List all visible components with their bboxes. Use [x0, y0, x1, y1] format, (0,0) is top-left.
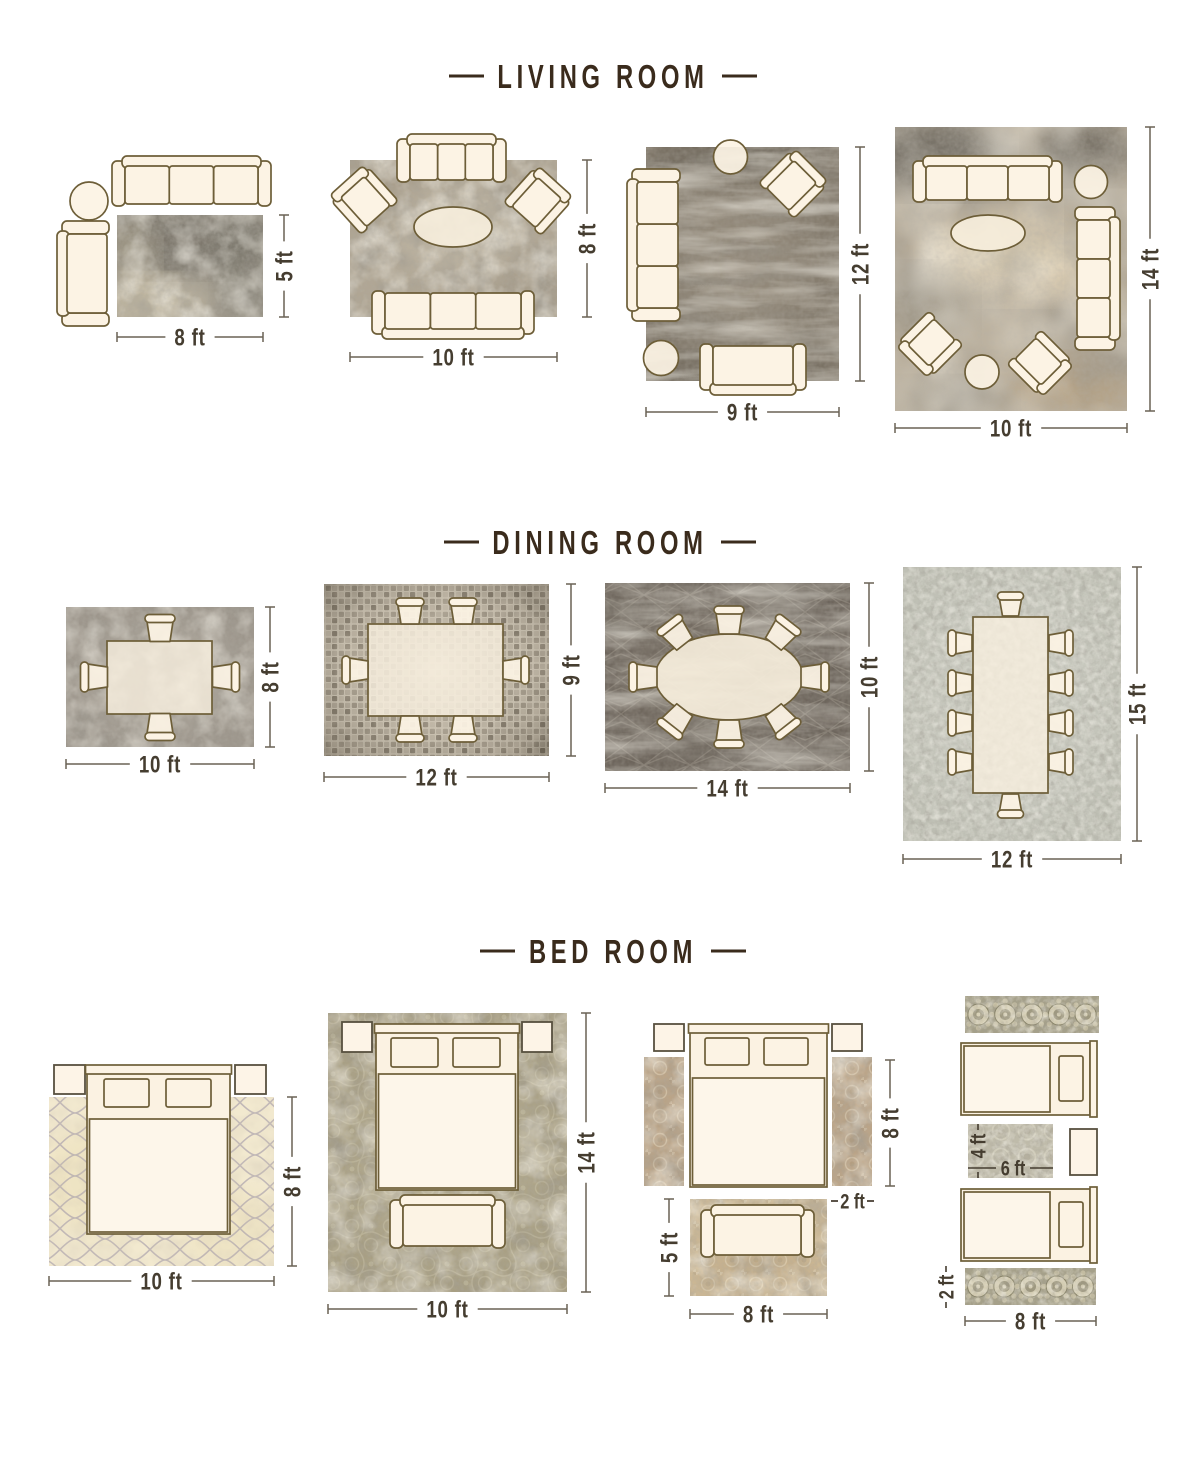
- svg-text:BED ROOM: BED ROOM: [529, 934, 697, 971]
- svg-text:15 ft: 15 ft: [1124, 683, 1151, 725]
- svg-text:5 ft: 5 ft: [656, 1232, 683, 1263]
- svg-text:10 ft: 10 ft: [426, 1296, 468, 1323]
- svg-text:10 ft: 10 ft: [856, 656, 883, 698]
- svg-text:10 ft: 10 ft: [139, 751, 181, 778]
- svg-text:9 ft: 9 ft: [727, 399, 758, 426]
- svg-text:5 ft: 5 ft: [271, 250, 298, 281]
- svg-text:10 ft: 10 ft: [432, 344, 474, 371]
- svg-text:12 ft: 12 ft: [847, 243, 874, 285]
- svg-text:8 ft: 8 ft: [1015, 1308, 1046, 1335]
- svg-text:8 ft: 8 ft: [279, 1166, 306, 1197]
- svg-text:14 ft: 14 ft: [573, 1131, 600, 1173]
- svg-text:12 ft: 12 ft: [415, 764, 457, 791]
- svg-text:8 ft: 8 ft: [174, 324, 205, 351]
- svg-text:14 ft: 14 ft: [1137, 248, 1164, 290]
- svg-text:14 ft: 14 ft: [706, 775, 748, 802]
- svg-text:8 ft: 8 ft: [877, 1107, 904, 1138]
- svg-text:8 ft: 8 ft: [574, 223, 601, 254]
- svg-text:10 ft: 10 ft: [140, 1268, 182, 1295]
- svg-text:DINING ROOM: DINING ROOM: [492, 525, 707, 562]
- svg-text:9 ft: 9 ft: [558, 654, 585, 685]
- svg-text:2 ft: 2 ft: [840, 1190, 865, 1213]
- svg-text:LIVING ROOM: LIVING ROOM: [497, 59, 708, 96]
- svg-text:10 ft: 10 ft: [990, 415, 1032, 442]
- svg-text:12 ft: 12 ft: [991, 846, 1033, 873]
- svg-text:6 ft: 6 ft: [1001, 1157, 1026, 1180]
- svg-text:8 ft: 8 ft: [743, 1301, 774, 1328]
- svg-text:2 ft: 2 ft: [935, 1274, 958, 1299]
- svg-text:4 ft: 4 ft: [967, 1133, 990, 1158]
- svg-text:8 ft: 8 ft: [257, 661, 284, 692]
